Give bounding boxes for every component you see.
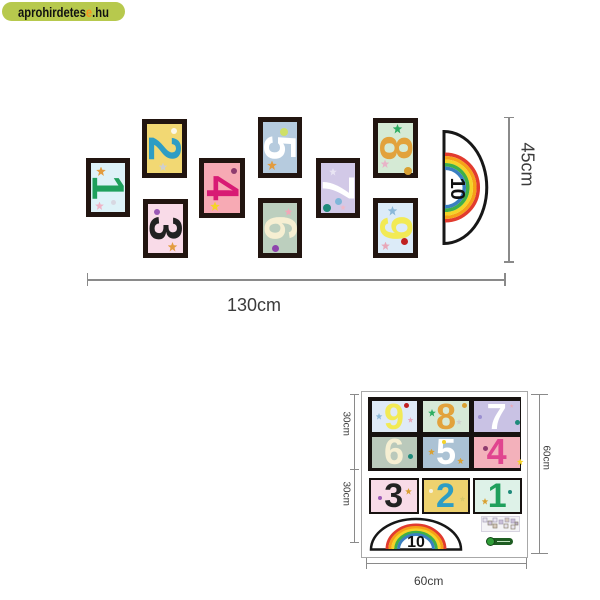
svg-text:10: 10 — [407, 534, 425, 551]
svg-text:10: 10 — [446, 178, 468, 200]
